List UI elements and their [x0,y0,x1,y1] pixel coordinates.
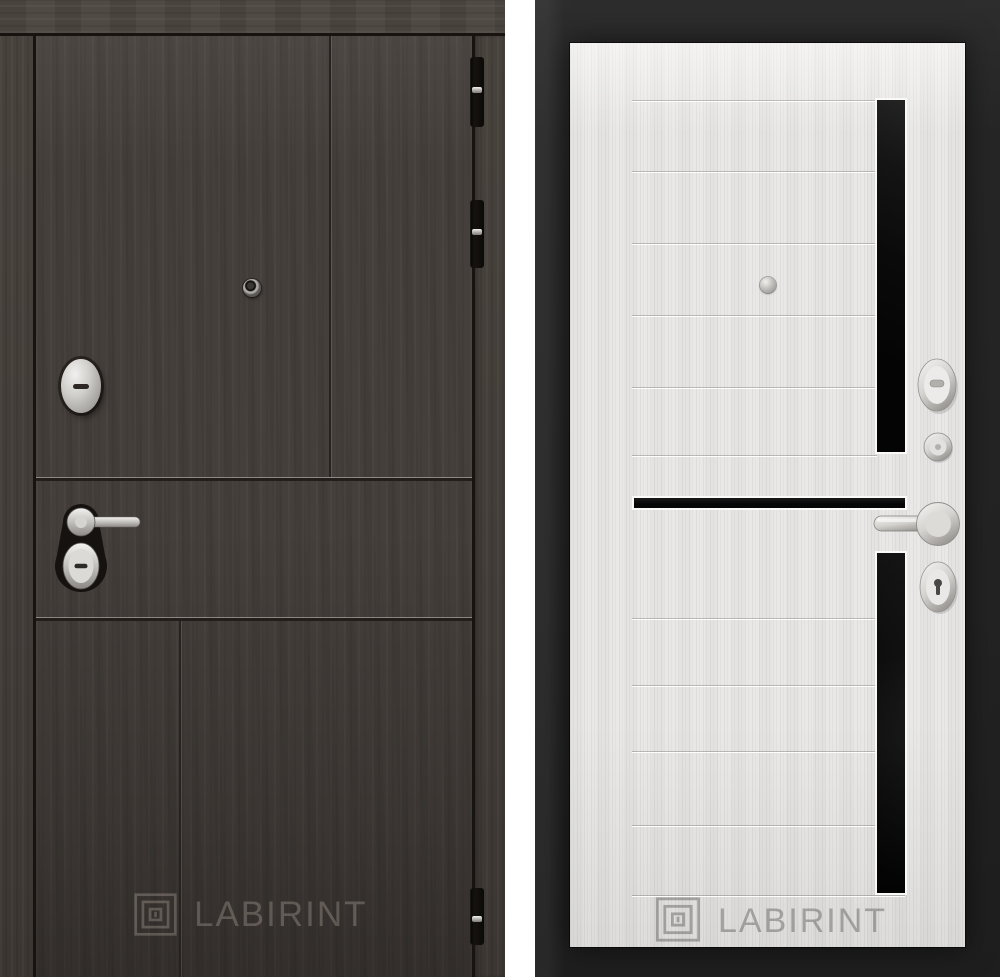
door-hinge [470,888,484,945]
door-hinge [470,57,484,127]
panel-groove [632,387,877,389]
panel-groove [36,617,472,621]
panel-groove [36,477,472,481]
panel-groove [632,455,877,457]
panel-seam [329,36,332,477]
hinge-pin [472,229,482,235]
leaf-gap-right [472,36,475,977]
interior-lock-hardware [868,348,972,614]
panel-groove [632,618,877,620]
peephole [243,279,261,297]
panel-groove [632,243,877,245]
door-frame-jamb-left [0,36,33,977]
door-frame-jamb-right [475,36,505,977]
exterior-door-photo: LABIRINT [0,0,505,977]
labyrinth-logo-icon [132,892,179,937]
key-cylinder-escutcheon [61,359,101,413]
photo-divider [505,0,535,977]
panel-groove [632,685,877,687]
exterior-door-leaf: LABIRINT [36,36,472,977]
interior-door-photo: LABIRINT [535,0,1000,977]
interior-door-leaf: LABIRINT [570,43,965,947]
glass-insert-horizontal [634,498,905,508]
panel-groove [632,171,877,173]
brand-watermark: LABIRINT [194,897,368,932]
panel-groove [632,751,877,753]
panel-groove [632,825,877,827]
door-product-composite: LABIRINT [0,0,1000,977]
peephole [760,277,776,293]
panel-groove [632,100,877,102]
hinge-pin [472,916,482,922]
hinge-pin [472,87,482,93]
brand-watermark: LABIRINT [718,904,887,938]
panel-seam [179,621,182,977]
labyrinth-logo-icon [653,896,703,943]
lever-handle-assembly [55,493,150,608]
door-hinge [470,200,484,268]
panel-groove [632,315,877,317]
door-frame-lintel [0,0,505,33]
keyhole-slot [73,384,89,389]
